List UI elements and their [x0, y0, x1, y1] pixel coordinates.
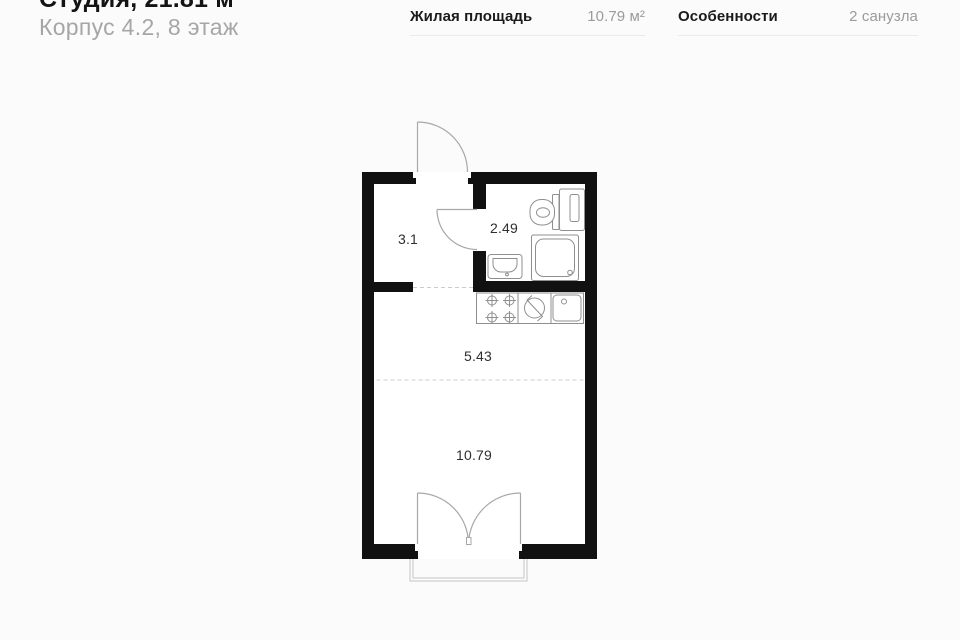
apartment-card[interactable]: Студия, 21.81 м² Корпус 4.2, 8 этаж Жила… [0, 0, 960, 640]
entry-door-icon [418, 122, 468, 172]
towel-dryer-icon [560, 189, 585, 231]
balcony-outline [410, 559, 527, 581]
shower-icon [532, 235, 579, 281]
floor-plan: 3.1 2.49 5.43 10.79 [0, 0, 960, 640]
bathroom-sink-icon [488, 255, 522, 279]
room-label-hallway: 3.1 [398, 231, 418, 247]
room-label-kitchen-zone: 5.43 [464, 348, 492, 364]
room-label-living-zone: 10.79 [456, 447, 492, 463]
room-label-bathroom: 2.49 [490, 220, 518, 236]
